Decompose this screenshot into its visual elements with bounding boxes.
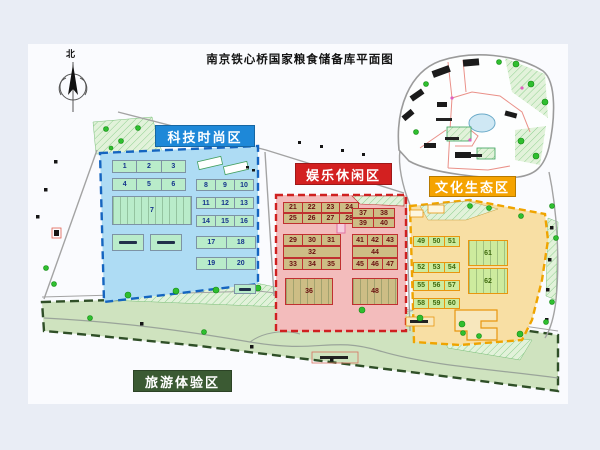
zone-label-tech: 科技时尚区 bbox=[155, 125, 255, 147]
page-title: 南京铁心桥国家粮食储备库平面图 bbox=[150, 51, 450, 67]
map-artwork bbox=[0, 0, 600, 450]
zone-label-fun: 娱乐休闲区 bbox=[295, 163, 392, 185]
zone-label-culture: 文化生态区 bbox=[429, 176, 516, 197]
pond bbox=[469, 114, 495, 132]
site-plan-page: 南京铁心桥国家粮食储备库平面图 北 科技时尚区 娱乐休闲区 文化生态区 旅游体验… bbox=[0, 0, 600, 450]
park-green-building bbox=[477, 148, 495, 159]
park bbox=[398, 55, 553, 178]
zone-label-tour: 旅游体验区 bbox=[133, 370, 232, 392]
compass-north-label: 北 bbox=[66, 47, 75, 60]
